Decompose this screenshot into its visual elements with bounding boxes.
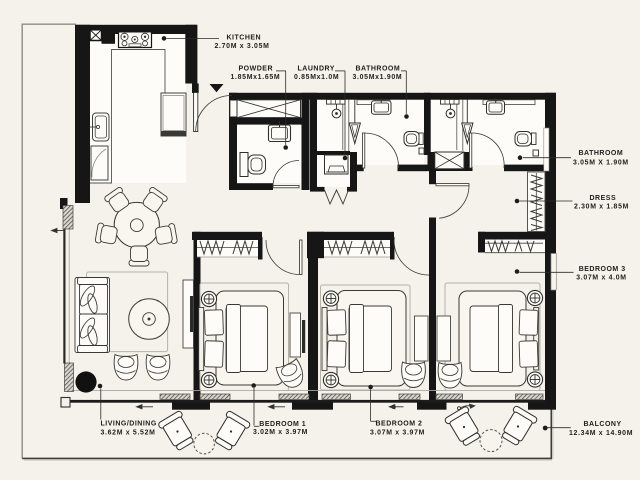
svg-text:BEDROOM 3: BEDROOM 3 xyxy=(579,266,626,273)
svg-text:3.07M x 3.97M: 3.07M x 3.97M xyxy=(370,429,425,436)
svg-text:BALCONY: BALCONY xyxy=(584,421,622,428)
svg-text:LIVING/DINING: LIVING/DINING xyxy=(101,421,157,428)
svg-text:BATHROOM: BATHROOM xyxy=(356,65,401,72)
svg-text:BATHROOM: BATHROOM xyxy=(579,150,624,157)
svg-text:3.05M X 1.90M: 3.05M X 1.90M xyxy=(573,160,629,167)
svg-text:POWDER: POWDER xyxy=(239,65,274,72)
svg-text:3.02M x 3.97M: 3.02M x 3.97M xyxy=(253,429,308,436)
svg-text:2.30M x 1.85M: 2.30M x 1.85M xyxy=(574,203,629,210)
svg-text:0.85Mx1.0M: 0.85Mx1.0M xyxy=(294,74,339,81)
svg-text:LAUNDRY: LAUNDRY xyxy=(298,65,335,72)
svg-text:3.07M x 4.0M: 3.07M x 4.0M xyxy=(576,274,627,281)
svg-text:BEDROOM 2: BEDROOM 2 xyxy=(376,421,423,428)
svg-text:1.85Mx1.65M: 1.85Mx1.65M xyxy=(231,74,281,81)
svg-text:3.62M x 5.52M: 3.62M x 5.52M xyxy=(101,429,156,436)
svg-text:BEDROOM 1: BEDROOM 1 xyxy=(259,421,306,428)
svg-text:12.34M x 14.90M: 12.34M x 14.90M xyxy=(569,430,633,437)
svg-text:2.70M x 3.05M: 2.70M x 3.05M xyxy=(215,43,270,50)
svg-text:KITCHEN: KITCHEN xyxy=(227,35,262,42)
svg-text:3.05Mx1.90M: 3.05Mx1.90M xyxy=(353,74,403,81)
svg-text:DRESS: DRESS xyxy=(590,195,617,202)
